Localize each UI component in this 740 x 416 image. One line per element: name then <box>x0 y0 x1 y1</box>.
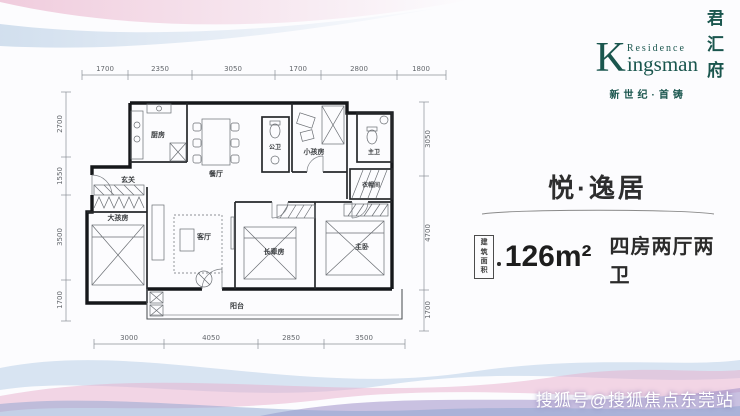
room-label-kitchen: 厨房 <box>151 130 165 139</box>
area-value: 126m² <box>505 240 592 274</box>
floor-plan: 1700 2350 3050 1700 2800 1800 3000 4050 … <box>52 56 462 358</box>
dim-left-4: 1700 <box>56 291 64 309</box>
balcony-walls <box>147 289 402 319</box>
logo-letter-k: K <box>595 42 625 75</box>
logo-ingsman-text: ingsman <box>627 54 698 75</box>
room-label-cloakroom: 衣帽间 <box>362 181 380 189</box>
title-divider <box>482 208 714 216</box>
logo-chinese-vertical: 君 汇 府 <box>707 10 724 79</box>
dim-top-5: 2800 <box>350 65 368 73</box>
room-label-kids-room: 小孩房 <box>303 147 325 156</box>
dim-right-2: 4700 <box>424 224 432 242</box>
area-badge-line2: 面积 <box>478 257 490 276</box>
logo-cn-char-2: 汇 <box>707 36 724 53</box>
dim-bottom-2: 4050 <box>202 334 220 342</box>
room-label-dining: 餐厅 <box>208 169 223 178</box>
interior-walls <box>87 103 392 303</box>
rooms-spec: 四房两厅两卫 <box>610 230 721 288</box>
brand-tagline: 新世纪·首铸 <box>609 86 724 101</box>
dim-top-2: 2350 <box>151 65 169 73</box>
floorplan-svg: 1700 2350 3050 1700 2800 1800 3000 4050 … <box>52 56 462 358</box>
dim-left-1: 2700 <box>56 115 64 133</box>
top-wave-decoration <box>0 0 560 62</box>
room-label-living: 客厅 <box>196 232 211 241</box>
dim-left-2: 1550 <box>56 167 64 185</box>
area-badge-line1: 建筑 <box>478 238 490 257</box>
dimension-labels: 1700 2350 3050 1700 2800 1800 3000 4050 … <box>56 65 432 342</box>
dim-top-6: 1800 <box>412 65 430 73</box>
room-label-guest-bath: 公卫 <box>269 144 281 151</box>
logo-cn-char-3: 府 <box>707 62 724 79</box>
dim-bottom-1: 3000 <box>120 334 138 342</box>
dim-right-1: 3050 <box>424 130 432 148</box>
dim-bottom-3: 2850 <box>282 334 300 342</box>
area-badge: 建筑 面积 <box>474 235 494 279</box>
dim-left-3: 3500 <box>56 228 64 246</box>
room-labels: 厨房 餐厅 公卫 小孩房 主卫 衣帽间 玄关 大孩房 客厅 长辈房 主卧 阳台 <box>108 130 381 310</box>
watermark: 搜狐号@搜狐焦点东莞站 <box>536 386 734 411</box>
logo-cn-char-1: 君 <box>707 10 724 27</box>
dim-right-3: 1700 <box>424 301 432 319</box>
furniture <box>92 104 388 316</box>
dim-top-3: 3050 <box>224 65 242 73</box>
room-label-big-kids-room: 大孩房 <box>108 213 129 222</box>
unit-spec-row: 建筑 面积 126m² 四房两厅两卫 <box>474 226 720 288</box>
dim-bottom-4: 3500 <box>355 334 373 342</box>
unit-title: 悦·逸居 <box>480 168 715 205</box>
dim-top-4: 1700 <box>289 65 307 73</box>
room-label-master-bath: 主卫 <box>368 148 380 156</box>
room-label-balcony: 阳台 <box>230 301 244 310</box>
room-label-master-bedroom: 主卧 <box>355 242 369 251</box>
dim-top-1: 1700 <box>96 65 114 73</box>
room-label-entry: 玄关 <box>121 175 135 184</box>
room-label-elder-room: 长辈房 <box>264 247 285 256</box>
spec-dot <box>497 262 501 266</box>
brand-logo: K Residence ingsman 君 汇 府 新世纪·首铸 <box>595 10 724 101</box>
